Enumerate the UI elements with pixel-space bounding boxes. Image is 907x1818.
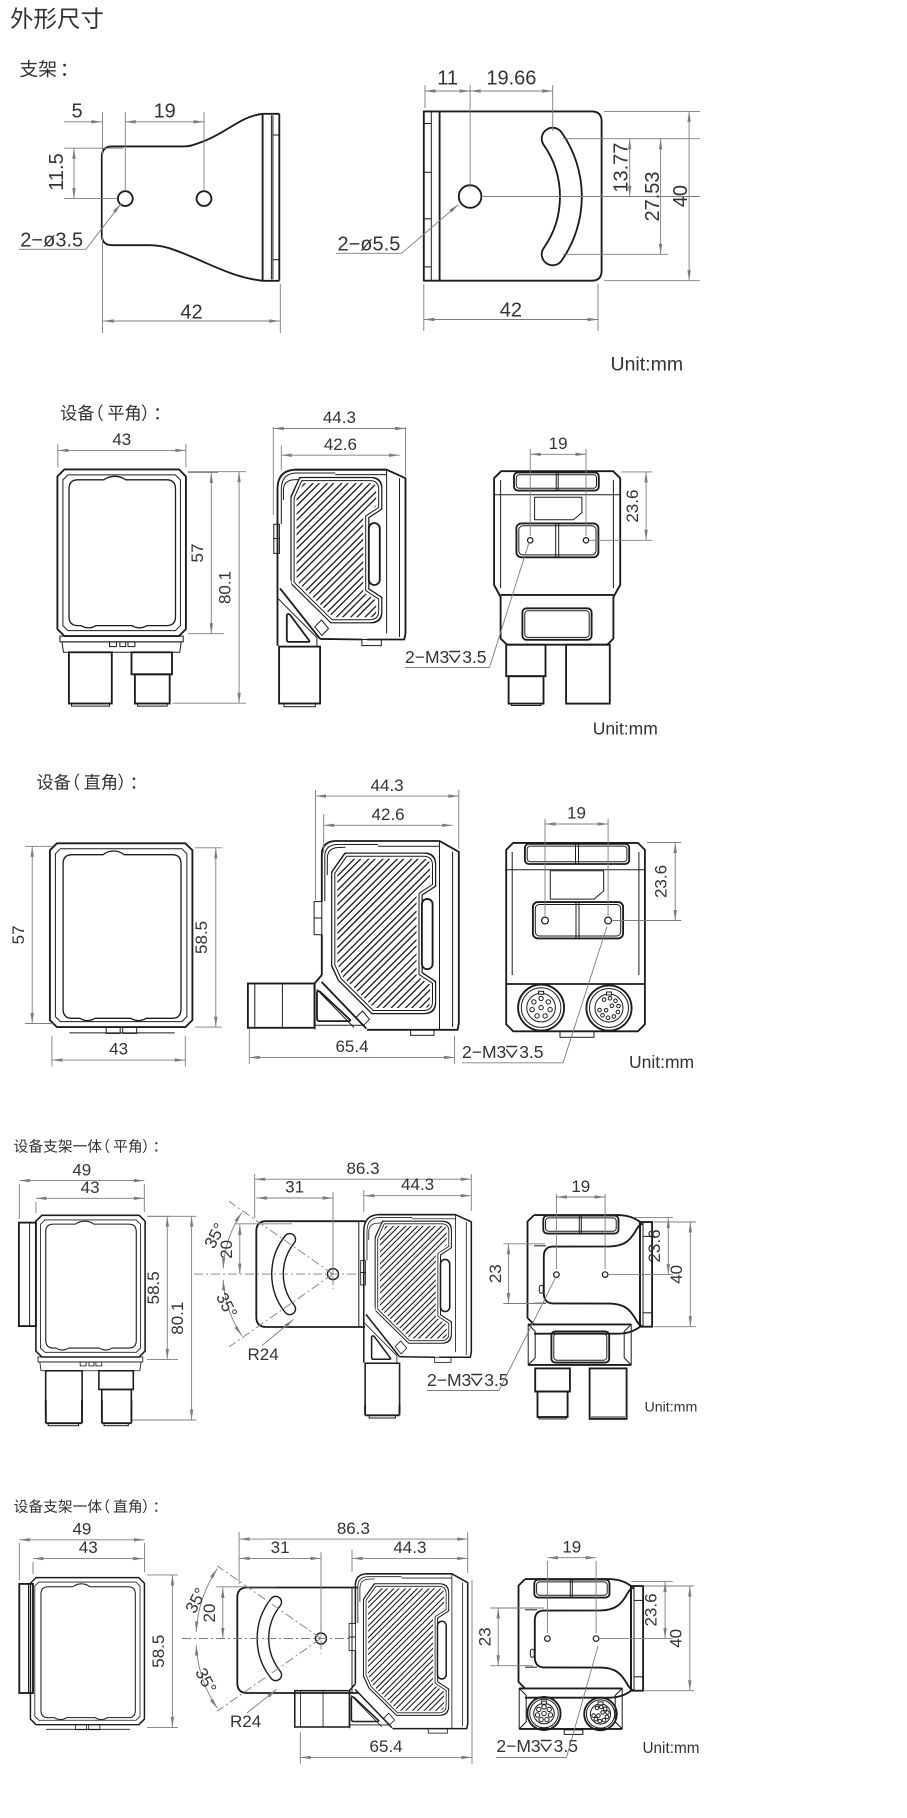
svg-text:2−ø5.5: 2−ø5.5 xyxy=(338,234,401,256)
svg-text:57: 57 xyxy=(188,544,207,563)
svg-text:27.53: 27.53 xyxy=(642,171,664,221)
svg-text:23.6: 23.6 xyxy=(642,1593,661,1626)
svg-text:43: 43 xyxy=(81,1178,100,1197)
svg-text:2−M3: 2−M3 xyxy=(462,1042,506,1062)
svg-text:42.6: 42.6 xyxy=(372,805,405,824)
svg-text:43: 43 xyxy=(109,1040,128,1059)
svg-text:31: 31 xyxy=(285,1177,304,1196)
svg-text:19: 19 xyxy=(549,434,568,453)
svg-text:80.1: 80.1 xyxy=(216,571,235,604)
svg-text:3.5: 3.5 xyxy=(554,1736,578,1756)
svg-text:3.5: 3.5 xyxy=(519,1042,543,1062)
svg-text:Unit:mm: Unit:mm xyxy=(593,719,658,739)
svg-text:65.4: 65.4 xyxy=(370,1737,403,1756)
svg-text:11: 11 xyxy=(437,67,458,89)
svg-text:23: 23 xyxy=(486,1264,505,1283)
svg-text:5: 5 xyxy=(71,101,82,123)
svg-text:19: 19 xyxy=(562,1538,581,1557)
svg-text:49: 49 xyxy=(72,1520,91,1539)
svg-text:2−M3: 2−M3 xyxy=(405,647,449,667)
svg-text:80.1: 80.1 xyxy=(168,1302,187,1335)
svg-text:44.3: 44.3 xyxy=(401,1175,434,1194)
svg-text:42.6: 42.6 xyxy=(324,435,357,454)
svg-text:44.3: 44.3 xyxy=(323,408,356,427)
svg-text:Unit:mm: Unit:mm xyxy=(611,354,684,376)
svg-text:40: 40 xyxy=(667,1265,686,1284)
svg-text:40: 40 xyxy=(670,185,692,207)
svg-text:58.5: 58.5 xyxy=(149,1635,168,1668)
svg-text:19: 19 xyxy=(567,804,586,823)
svg-text:23.6: 23.6 xyxy=(623,490,642,523)
svg-text:R24: R24 xyxy=(248,1345,279,1364)
svg-text:R24: R24 xyxy=(230,1712,261,1731)
svg-text:2−M3: 2−M3 xyxy=(427,1370,471,1390)
svg-text:3.5: 3.5 xyxy=(484,1370,508,1390)
svg-text:23.6: 23.6 xyxy=(652,865,671,898)
svg-text:43: 43 xyxy=(79,1538,98,1557)
svg-text:19: 19 xyxy=(571,1177,590,1196)
svg-text:23: 23 xyxy=(476,1627,495,1646)
svg-text:65.4: 65.4 xyxy=(335,1037,368,1056)
svg-text:13.77: 13.77 xyxy=(611,143,633,193)
svg-text:Unit:mm: Unit:mm xyxy=(643,1740,700,1757)
svg-text:40: 40 xyxy=(666,1629,685,1648)
svg-text:86.3: 86.3 xyxy=(346,1159,379,1178)
svg-text:19: 19 xyxy=(154,101,176,123)
svg-text:23.6: 23.6 xyxy=(645,1229,664,1262)
svg-text:58.5: 58.5 xyxy=(192,921,211,954)
svg-text:44.3: 44.3 xyxy=(371,776,404,795)
svg-text:19.66: 19.66 xyxy=(486,67,536,89)
svg-text:43: 43 xyxy=(112,430,131,449)
svg-text:42: 42 xyxy=(180,301,202,323)
svg-text:31: 31 xyxy=(271,1538,290,1557)
svg-text:2−M3: 2−M3 xyxy=(496,1736,540,1756)
svg-text:49: 49 xyxy=(72,1160,91,1179)
svg-text:Unit:mm: Unit:mm xyxy=(645,1399,698,1415)
svg-text:2−ø3.5: 2−ø3.5 xyxy=(20,230,83,252)
svg-text:3.5: 3.5 xyxy=(462,647,486,667)
svg-text:86.3: 86.3 xyxy=(337,1519,370,1538)
svg-text:58.5: 58.5 xyxy=(144,1271,163,1304)
svg-text:11.5: 11.5 xyxy=(46,153,68,190)
svg-text:42: 42 xyxy=(500,299,522,321)
svg-text:44.3: 44.3 xyxy=(393,1538,426,1557)
svg-text:Unit:mm: Unit:mm xyxy=(629,1052,694,1072)
svg-text:57: 57 xyxy=(9,925,28,944)
